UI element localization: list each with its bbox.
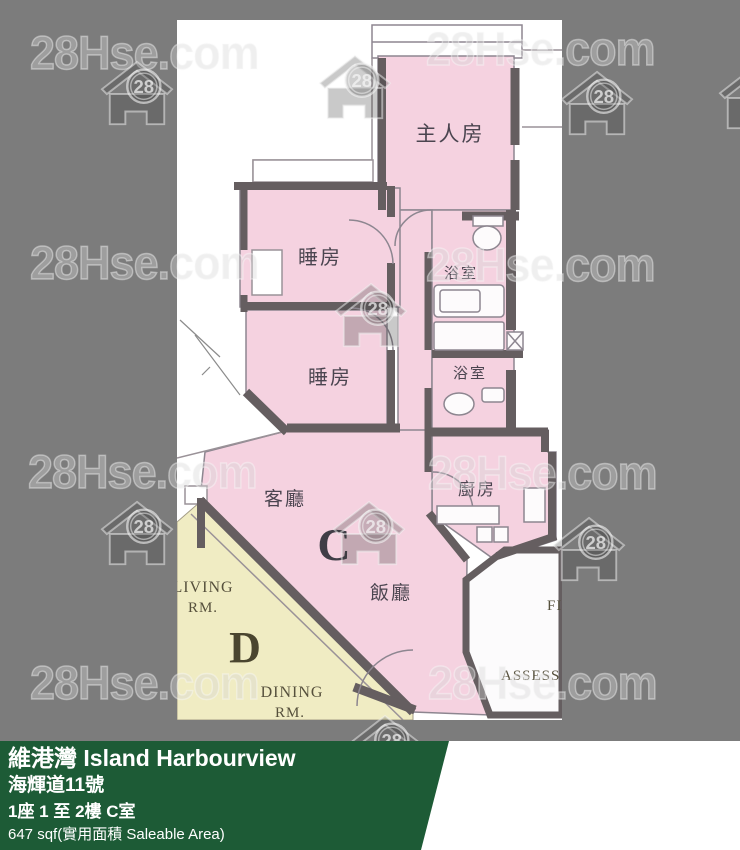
label-lobby-bottom: ASSESS bbox=[501, 668, 560, 684]
footer-bar: 維港灣 Island Harbourview 海輝道11號 1座 1 至 2樓 … bbox=[0, 741, 740, 850]
svg-text:28: 28 bbox=[134, 76, 155, 97]
bedroom1-window-band bbox=[253, 160, 373, 182]
toilet1-tank bbox=[473, 216, 503, 226]
floor-plan: 主人房 睡房 睡房 浴室 浴室 客廳 飯廳 廚房 C D LIVING RM. … bbox=[177, 20, 562, 720]
toilet2-icon bbox=[444, 393, 474, 415]
watermark-house-icon: 28 bbox=[100, 500, 174, 575]
label-d-living-1: LIVING bbox=[177, 579, 234, 596]
label-d-living-2: RM. bbox=[188, 600, 218, 616]
svg-text:28: 28 bbox=[594, 86, 615, 107]
sink1-icon bbox=[440, 290, 480, 312]
property-area: 647 sqf(實用面積 Saleable Area) bbox=[8, 824, 449, 845]
label-bedroom-2: 睡房 bbox=[308, 366, 352, 389]
watermark-house-icon: 28 bbox=[100, 60, 174, 135]
svg-text:28: 28 bbox=[586, 532, 607, 553]
svg-text:28: 28 bbox=[134, 516, 155, 537]
label-unit-d: D bbox=[229, 623, 261, 672]
property-title: 維港灣 Island Harbourview bbox=[8, 744, 449, 773]
label-living-room: 客廳 bbox=[264, 488, 306, 510]
label-d-dining-1: DINING bbox=[261, 684, 324, 701]
cabinet bbox=[434, 322, 504, 350]
kitchen-sink-2 bbox=[494, 527, 508, 542]
kitchen-counter bbox=[437, 506, 499, 524]
lift-lobby bbox=[466, 550, 562, 715]
label-lobby-top: FI bbox=[547, 598, 562, 614]
label-dining-room: 飯廳 bbox=[370, 582, 412, 604]
floor-plan-drawing: 主人房 睡房 睡房 浴室 浴室 客廳 飯廳 廚房 C D LIVING RM. … bbox=[177, 20, 562, 720]
label-bathroom-1: 浴室 bbox=[444, 265, 478, 282]
label-master-bedroom: 主人房 bbox=[416, 123, 485, 146]
toilet1-icon bbox=[473, 226, 501, 250]
property-address: 海輝道11號 bbox=[8, 773, 449, 799]
bedroom1-bay-window bbox=[252, 250, 282, 295]
label-bathroom-2: 浴室 bbox=[453, 365, 487, 382]
kitchen-sink-1 bbox=[477, 527, 492, 542]
label-kitchen: 廚房 bbox=[458, 479, 496, 499]
watermark-house-icon: 28 bbox=[718, 64, 740, 139]
watermark-house-icon: 28 bbox=[552, 516, 626, 591]
label-unit-c: C bbox=[317, 519, 350, 570]
property-info-panel: 維港灣 Island Harbourview 海輝道11號 1座 1 至 2樓 … bbox=[0, 741, 449, 850]
label-d-dining-2: RM. bbox=[275, 705, 305, 720]
sketch-lines bbox=[180, 320, 240, 395]
sink2-icon bbox=[482, 388, 504, 402]
screenshot-root: 主人房 睡房 睡房 浴室 浴室 客廳 飯廳 廚房 C D LIVING RM. … bbox=[0, 0, 740, 850]
fridge bbox=[524, 488, 545, 522]
label-bedroom-1: 睡房 bbox=[298, 246, 342, 269]
property-unit: 1座 1 至 2樓 C室 bbox=[8, 799, 449, 824]
watermark-house-icon: 28 bbox=[560, 70, 634, 145]
